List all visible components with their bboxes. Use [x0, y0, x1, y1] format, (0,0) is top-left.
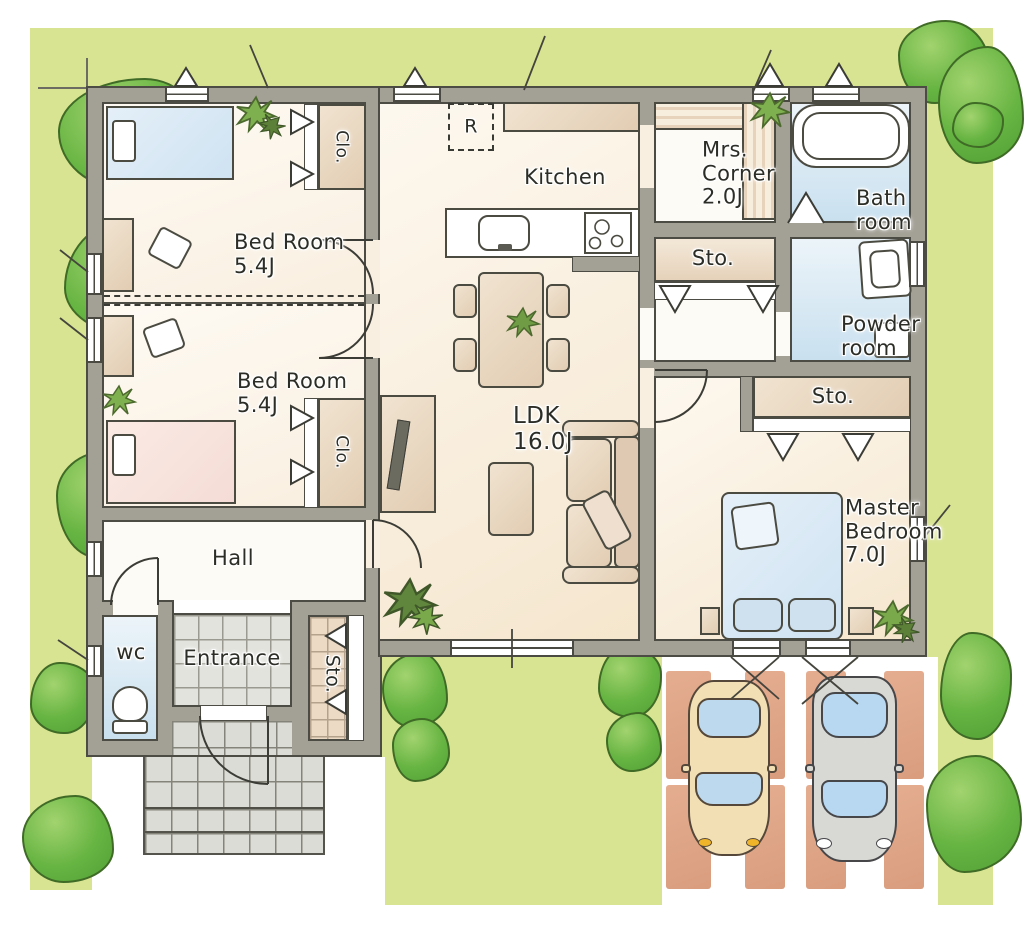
closet1-door — [304, 104, 318, 190]
bed-pillow — [112, 120, 136, 162]
sink-faucet — [498, 244, 512, 251]
room-name: room — [856, 211, 912, 235]
car-mirror — [681, 764, 691, 773]
tree — [22, 795, 114, 883]
room-size: 16.0J — [513, 430, 573, 456]
coffee-table — [488, 462, 534, 536]
bed-cushion — [788, 598, 836, 632]
front-door-step — [200, 705, 267, 721]
car-wheel — [816, 838, 832, 849]
washing-machine-drum — [869, 249, 902, 289]
kitchen-storage-label: Sto. — [692, 247, 734, 271]
entrance-storage-label: Sto. — [321, 655, 342, 693]
room-size: 5.4J — [234, 255, 275, 279]
kitchen-back-counter — [503, 102, 640, 132]
tree — [606, 712, 662, 772]
room-name: LDK — [513, 404, 560, 430]
closet1-label: Clo. — [331, 130, 350, 164]
room-name: Bed Room — [237, 370, 347, 394]
master-storage-wall — [740, 376, 753, 432]
dining-chair — [453, 284, 477, 318]
car-gray — [812, 676, 897, 862]
kitchen-mrs-opening — [640, 125, 654, 188]
powder-door-gap — [776, 312, 790, 356]
bathtub-inner — [802, 112, 900, 160]
car-windshield — [821, 780, 888, 818]
bedroom2-door-gap — [366, 304, 380, 358]
dining-chair — [546, 284, 570, 318]
window — [732, 639, 781, 657]
dining-table — [478, 272, 544, 388]
car-mirror — [805, 764, 815, 773]
floor-plan: Bed Room 5.4J Bed Room 5.4J Clo. Clo. Ha… — [0, 0, 1024, 933]
room-name: Master — [845, 496, 919, 520]
car-mirror — [894, 764, 904, 773]
bed-pillow — [112, 434, 136, 476]
refrigerator-label: R — [464, 116, 478, 137]
tree — [940, 632, 1012, 740]
toilet — [112, 686, 148, 722]
window — [752, 86, 790, 102]
window — [393, 86, 441, 102]
tv-board — [380, 395, 436, 513]
ldk-corridor-opening — [640, 308, 654, 360]
desk — [102, 315, 134, 377]
kitchen-half-wall — [572, 256, 640, 272]
movable-partition — [104, 304, 364, 306]
master-storage-door — [753, 418, 911, 432]
room-name: Bedroom — [845, 520, 943, 544]
window — [909, 241, 925, 287]
window — [86, 317, 102, 363]
dining-chair — [546, 338, 570, 372]
window — [805, 639, 851, 657]
room-name: Powder — [841, 313, 920, 337]
room-name: Mrs. — [702, 138, 748, 162]
window — [86, 253, 102, 295]
sliding-door — [450, 639, 574, 657]
window — [86, 645, 102, 677]
movable-partition — [104, 295, 364, 297]
kitchen-stove — [584, 212, 632, 254]
window — [86, 541, 102, 577]
porch-recess — [172, 721, 292, 755]
porch-step — [143, 807, 325, 831]
car-windshield — [695, 772, 763, 806]
car-tan — [688, 680, 770, 856]
kitchen-label: Kitchen — [524, 166, 606, 190]
car-mirror — [767, 764, 777, 773]
toilet-tank — [112, 720, 148, 734]
window — [165, 86, 209, 102]
bed-pillow — [730, 501, 780, 551]
room-size: 5.4J — [237, 394, 278, 418]
room-size: 7.0J — [845, 544, 886, 568]
wc-label: wc — [116, 641, 146, 665]
entrance-storage-door — [348, 615, 364, 741]
sofa-back — [614, 436, 640, 568]
window — [812, 86, 860, 102]
porch-step — [143, 831, 325, 855]
master-storage-label: Sto. — [812, 385, 854, 409]
nightstand — [700, 607, 720, 635]
room-size: 2.0J — [702, 186, 743, 210]
entrance-label: Entrance — [183, 647, 280, 671]
nightstand — [848, 607, 874, 635]
kitchen-storage-door — [654, 282, 776, 300]
car-headlight — [698, 838, 712, 847]
sofa-armrest — [562, 566, 640, 584]
hall-label: Hall — [212, 547, 254, 571]
closet2-label: Clo. — [331, 435, 350, 469]
tree — [926, 755, 1022, 873]
car-wheel — [876, 838, 892, 849]
desk — [102, 218, 134, 292]
boundary-line — [38, 87, 88, 89]
car-headlight — [746, 838, 760, 847]
bedroom1-door-gap — [366, 240, 380, 294]
tree — [382, 652, 448, 728]
car-rear-window — [697, 698, 761, 738]
closet2-door — [304, 398, 318, 508]
bed-cushion — [733, 598, 783, 632]
hall-ldk-door-gap — [366, 520, 380, 568]
room-name: room — [841, 337, 897, 361]
room-name: Corner — [702, 162, 775, 186]
car-rear-window — [821, 692, 888, 738]
dining-chair — [453, 338, 477, 372]
room-name: Bed Room — [234, 231, 344, 255]
room-name: Bath — [856, 187, 906, 211]
master-door-gap — [640, 368, 654, 428]
corridor-floor — [654, 300, 776, 362]
boundary-line — [86, 58, 88, 89]
